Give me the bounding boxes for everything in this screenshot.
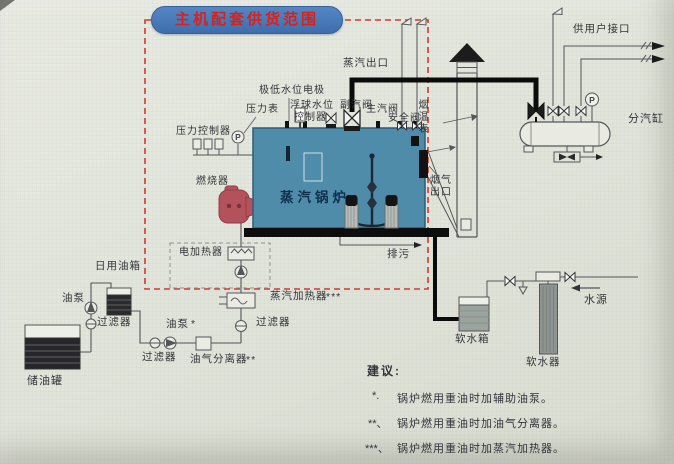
label-flue-outlet-2: 出口 bbox=[430, 187, 452, 198]
water-softener-icon bbox=[536, 272, 560, 354]
label-float-level-1: 浮球水位 bbox=[290, 100, 334, 111]
note-2-text: 锅炉燃用重油时加油气分离器。 bbox=[397, 415, 565, 431]
boiler-body bbox=[253, 121, 428, 228]
scanned-diagram-page: 主机配套供货范围 蒸汽锅炉 蒸汽出口 极低水位电极 压力表 浮球水位 控制器 副… bbox=[0, 0, 674, 464]
aux-steam-valve-icon bbox=[326, 113, 336, 128]
chimney-icon bbox=[427, 43, 485, 237]
filter-mid-icon bbox=[236, 321, 247, 332]
note-3-marker: ***、 bbox=[365, 440, 389, 456]
boiler-label: 蒸汽锅炉 bbox=[280, 186, 350, 206]
main-steam-valve-icon bbox=[344, 110, 360, 131]
label-pressure-controller: 压力控制器 bbox=[176, 126, 231, 137]
soft-water-tank-icon bbox=[459, 297, 489, 331]
note-1-marker: *. bbox=[372, 390, 379, 402]
label-water-softener: 软水器 bbox=[526, 357, 561, 369]
label-user-interface: 供用户接口 bbox=[573, 24, 631, 36]
label-low-water-electrode: 极低水位电极 bbox=[259, 85, 325, 96]
note-2-marker: **、 bbox=[368, 415, 388, 431]
label-steam-heater-mark: *** bbox=[326, 292, 341, 304]
label-pressure-gauge: 压力表 bbox=[246, 104, 279, 115]
boiler-base-skid bbox=[244, 228, 449, 237]
label-oil-gas-separator: 油气分离器 bbox=[190, 354, 248, 366]
water-piping bbox=[487, 277, 638, 297]
label-float-level-2: 控制器 bbox=[294, 112, 327, 123]
label-oil-storage-tank: 储油罐 bbox=[27, 375, 63, 387]
blowdown-line bbox=[340, 237, 422, 248]
label-steam-outlet: 蒸汽出口 bbox=[343, 58, 389, 70]
label-filter-left: 过滤器 bbox=[97, 317, 132, 329]
diagram-canvas bbox=[0, 0, 674, 464]
label-filter-mid: 过滤器 bbox=[256, 317, 291, 329]
label-burner: 燃烧器 bbox=[196, 176, 229, 187]
oil-pump-left-icon bbox=[85, 301, 97, 314]
pressure-gauge-symbol: P bbox=[233, 132, 243, 142]
note-1-text: 锅炉燃用重油时加辅助油泵。 bbox=[397, 390, 553, 406]
label-water-source: 水源 bbox=[584, 294, 608, 306]
label-flue-temp-gauge: 烟温表 bbox=[416, 99, 427, 135]
label-electric-heater: 电加热器 bbox=[179, 247, 223, 258]
label-filter-low: 过滤器 bbox=[142, 352, 177, 364]
filter-left-icon bbox=[86, 319, 96, 329]
supply-scope-title: 主机配套供货范围 bbox=[151, 6, 343, 34]
label-steam-cylinder: 分汽缸 bbox=[628, 113, 664, 125]
feedwater-pipe bbox=[435, 237, 459, 319]
label-flue-outlet-1: 烟气 bbox=[430, 175, 452, 186]
burner-icon bbox=[219, 186, 258, 223]
notes-heading: 建议: bbox=[367, 362, 401, 379]
daily-oil-tank-icon bbox=[107, 288, 131, 315]
label-daily-oil-tank: 日用油箱 bbox=[95, 261, 141, 273]
filter-low-icon bbox=[150, 338, 160, 348]
label-oil-gas-separator-mark: ** bbox=[246, 355, 256, 367]
distributor-gauge-symbol: P bbox=[587, 95, 597, 105]
steam-heater-icon bbox=[219, 293, 255, 308]
label-soft-water-tank: 软水箱 bbox=[455, 334, 490, 346]
oil-gas-separator-icon bbox=[196, 337, 211, 350]
oil-storage-tank-icon bbox=[25, 325, 80, 369]
label-oil-pump-mid: 油泵 bbox=[166, 319, 189, 331]
oil-pump-mid-icon bbox=[164, 337, 177, 349]
label-oil-pump-left: 油泵 bbox=[62, 293, 85, 305]
label-steam-heater: 蒸汽加热器 bbox=[270, 291, 328, 303]
label-blowdown: 排污 bbox=[387, 249, 410, 261]
note-3-text: 锅炉燃用重油时加蒸汽加热器。 bbox=[397, 440, 565, 456]
label-oil-pump-mark: * bbox=[191, 319, 196, 331]
